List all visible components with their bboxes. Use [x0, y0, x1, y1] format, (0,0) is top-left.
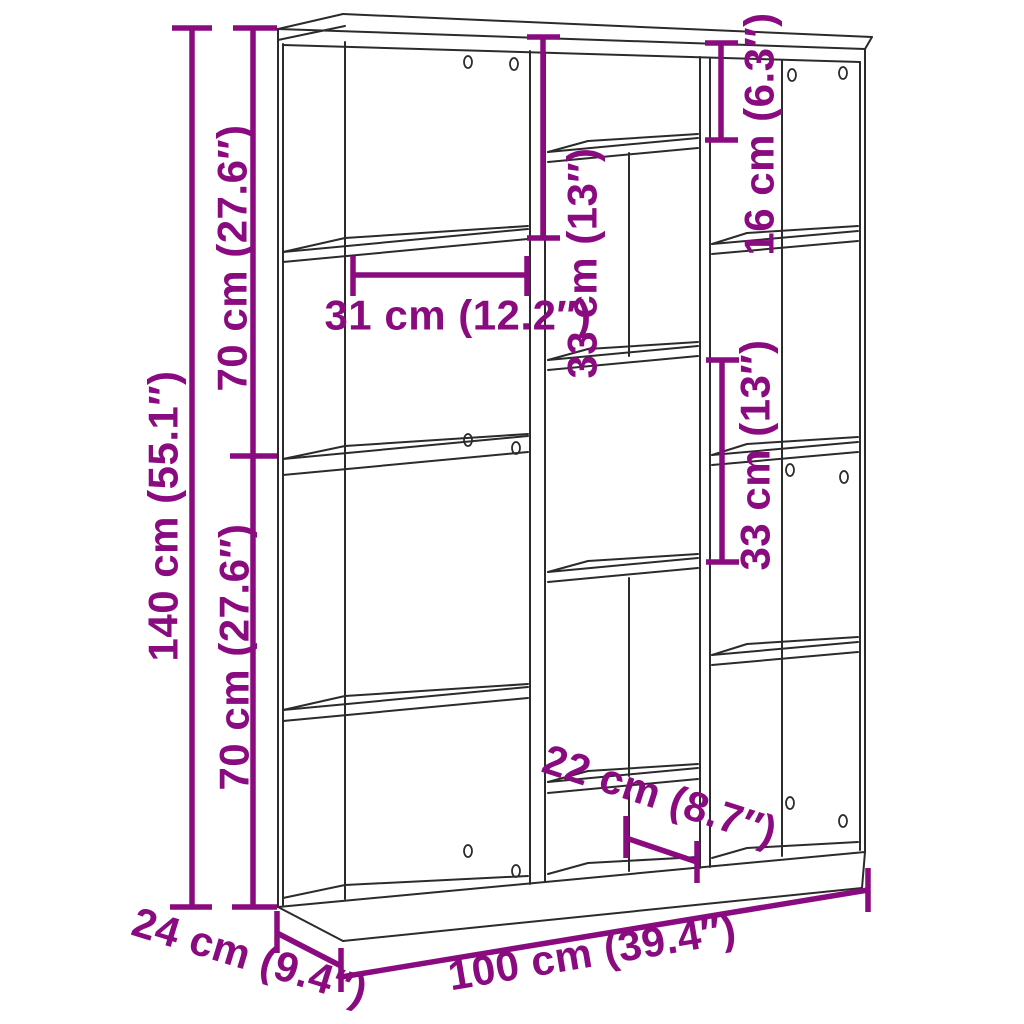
dim-bottom-cubby-width: 22 cm (8.7″): [537, 735, 783, 883]
dim-top-right-compartment-label: 16 cm (6.3″): [736, 12, 783, 255]
dim-height-lower-label: 70 cm (27.6″): [211, 523, 258, 790]
dim-compartment-width: 31 cm (12.2″): [324, 256, 591, 339]
bookcase-mid-divider: [283, 434, 528, 475]
dim-height-upper-label: 70 cm (27.6″): [209, 124, 256, 391]
dim-bottom-cubby-width-label: 22 cm (8.7″): [537, 735, 783, 855]
dim-compartment-width-label: 31 cm (12.2″): [324, 292, 591, 339]
dim-top-right-compartment: 16 cm (6.3″): [705, 12, 783, 255]
dim-height-total-label: 140 cm (55.1″): [140, 371, 187, 662]
dim-height-upper: 70 cm (27.6″): [209, 28, 278, 456]
diagram-canvas: 140 cm (55.1″) 70 cm (27.6″) 70 cm (27.6…: [0, 0, 1024, 1024]
dim-depth-total: 24 cm (9.4″): [127, 898, 373, 1014]
dim-width-total-label: 100 cm (39.4″): [445, 905, 740, 999]
screw-holes: [464, 56, 848, 877]
dim-depth-total-label: 24 cm (9.4″): [127, 898, 373, 1014]
bookshelf-diagram-svg: 140 cm (55.1″) 70 cm (27.6″) 70 cm (27.6…: [0, 0, 1024, 1024]
dimension-annotations: 140 cm (55.1″) 70 cm (27.6″) 70 cm (27.6…: [127, 12, 868, 1014]
dim-height-total: 140 cm (55.1″): [140, 28, 213, 907]
dim-middle-compartment-label: 33 cm (13″): [732, 339, 779, 570]
dim-top-left-compartment-label: 33 cm (13″): [559, 147, 606, 378]
dim-height-lower: 70 cm (27.6″): [211, 456, 278, 907]
